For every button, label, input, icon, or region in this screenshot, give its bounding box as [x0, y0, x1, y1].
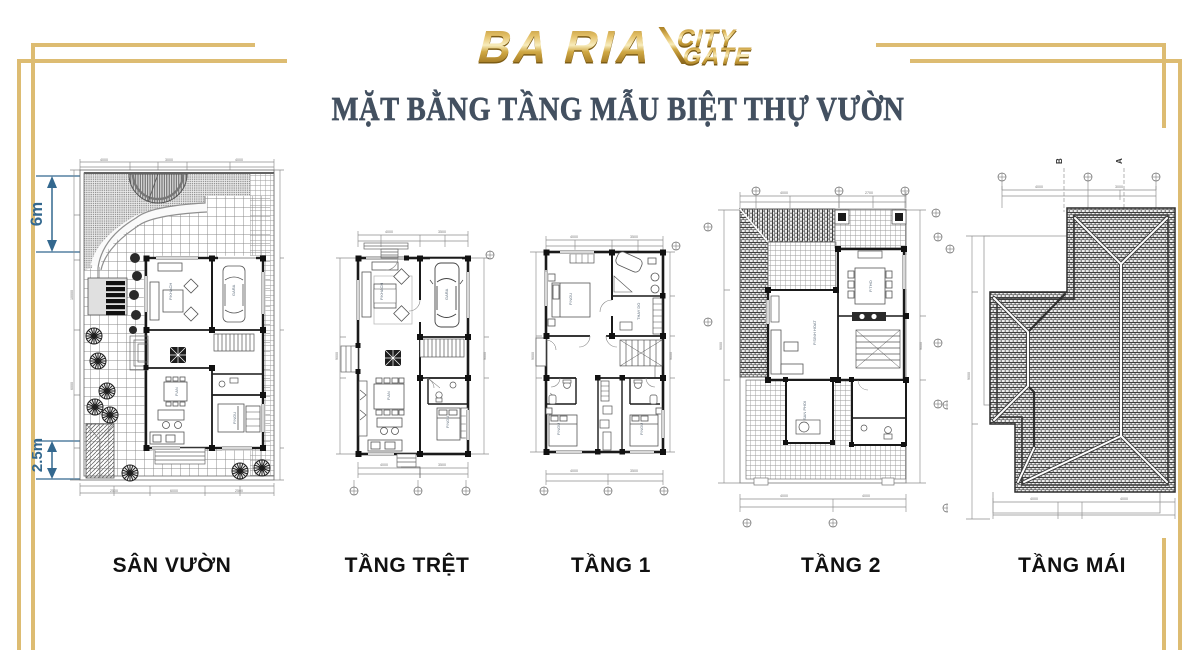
svg-text:SAN PHOI: SAN PHOI [802, 401, 807, 420]
svg-text:4000: 4000 [1120, 497, 1128, 501]
svg-text:3500: 3500 [630, 235, 638, 239]
svg-text:4000: 4000 [570, 235, 578, 239]
svg-text:3000: 3000 [1115, 185, 1123, 189]
svg-text:9000: 9000 [483, 352, 487, 360]
svg-text:P.KHACH: P.KHACH [168, 283, 173, 300]
svg-text:TẦNG TRỆT: TẦNG TRỆT [345, 553, 470, 577]
svg-text:6m: 6m [27, 202, 46, 227]
svg-text:TẦNG 1: TẦNG 1 [571, 554, 651, 577]
svg-text:6000: 6000 [70, 382, 74, 390]
svg-text:4000: 4000 [780, 191, 788, 195]
svg-text:3500: 3500 [438, 230, 446, 234]
svg-text:3500: 3500 [438, 463, 446, 467]
svg-text:3500: 3500 [630, 469, 638, 473]
svg-text:4000: 4000 [1035, 185, 1043, 189]
svg-text:P.AN: P.AN [386, 391, 391, 400]
svg-text:P.NGU: P.NGU [556, 423, 561, 435]
svg-text:P.AN: P.AN [174, 387, 179, 396]
svg-text:GARA: GARA [231, 284, 236, 296]
svg-text:9000: 9000 [669, 352, 673, 360]
svg-text:THAY DO: THAY DO [636, 303, 641, 320]
svg-text:3000: 3000 [165, 158, 173, 162]
svg-text:4000: 4000 [570, 469, 578, 473]
svg-text:GATE: GATE [680, 43, 755, 70]
svg-text:P.NGU: P.NGU [232, 412, 237, 424]
svg-text:4000: 4000 [862, 494, 870, 498]
svg-text:TẦNG 2: TẦNG 2 [801, 554, 881, 577]
svg-text:P.SINH HOAT: P.SINH HOAT [812, 320, 817, 345]
svg-text:4000: 4000 [100, 158, 108, 162]
svg-text:B: B [1055, 158, 1064, 164]
svg-text:2500: 2500 [110, 489, 118, 493]
svg-text:MẶT BẰNG TẦNG MẪU BIỆT THỰ VƯỜ: MẶT BẰNG TẦNG MẪU BIỆT THỰ VƯỜN [332, 88, 905, 127]
svg-text:P.NGU: P.NGU [445, 416, 450, 428]
svg-text:P.KHACH: P.KHACH [379, 283, 384, 300]
svg-text:A: A [1115, 158, 1124, 164]
svg-text:SÂN VƯỜN: SÂN VƯỜN [113, 553, 232, 577]
svg-text:9000: 9000 [967, 372, 971, 380]
svg-text:GARA: GARA [444, 288, 449, 300]
svg-text:P.THO: P.THO [868, 280, 873, 292]
svg-text:2.5m: 2.5m [29, 438, 46, 472]
svg-text:4000: 4000 [1030, 497, 1038, 501]
svg-text:10000: 10000 [70, 290, 74, 300]
svg-text:9000: 9000 [335, 352, 339, 360]
svg-text:4000: 4000 [385, 230, 393, 234]
svg-text:9000: 9000 [719, 342, 723, 350]
svg-text:2500: 2500 [235, 489, 243, 493]
svg-text:4000: 4000 [780, 494, 788, 498]
svg-text:TẦNG MÁI: TẦNG MÁI [1018, 554, 1126, 577]
svg-text:P.NGU: P.NGU [568, 293, 573, 305]
svg-text:4000: 4000 [235, 158, 243, 162]
svg-text:6000: 6000 [170, 489, 178, 493]
svg-text:BA RIA: BA RIA [473, 22, 660, 72]
svg-text:P.NGU: P.NGU [639, 423, 644, 435]
svg-text:9000: 9000 [531, 352, 535, 360]
svg-text:2700: 2700 [865, 191, 873, 195]
svg-text:4000: 4000 [380, 463, 388, 467]
svg-text:9000: 9000 [919, 342, 923, 350]
